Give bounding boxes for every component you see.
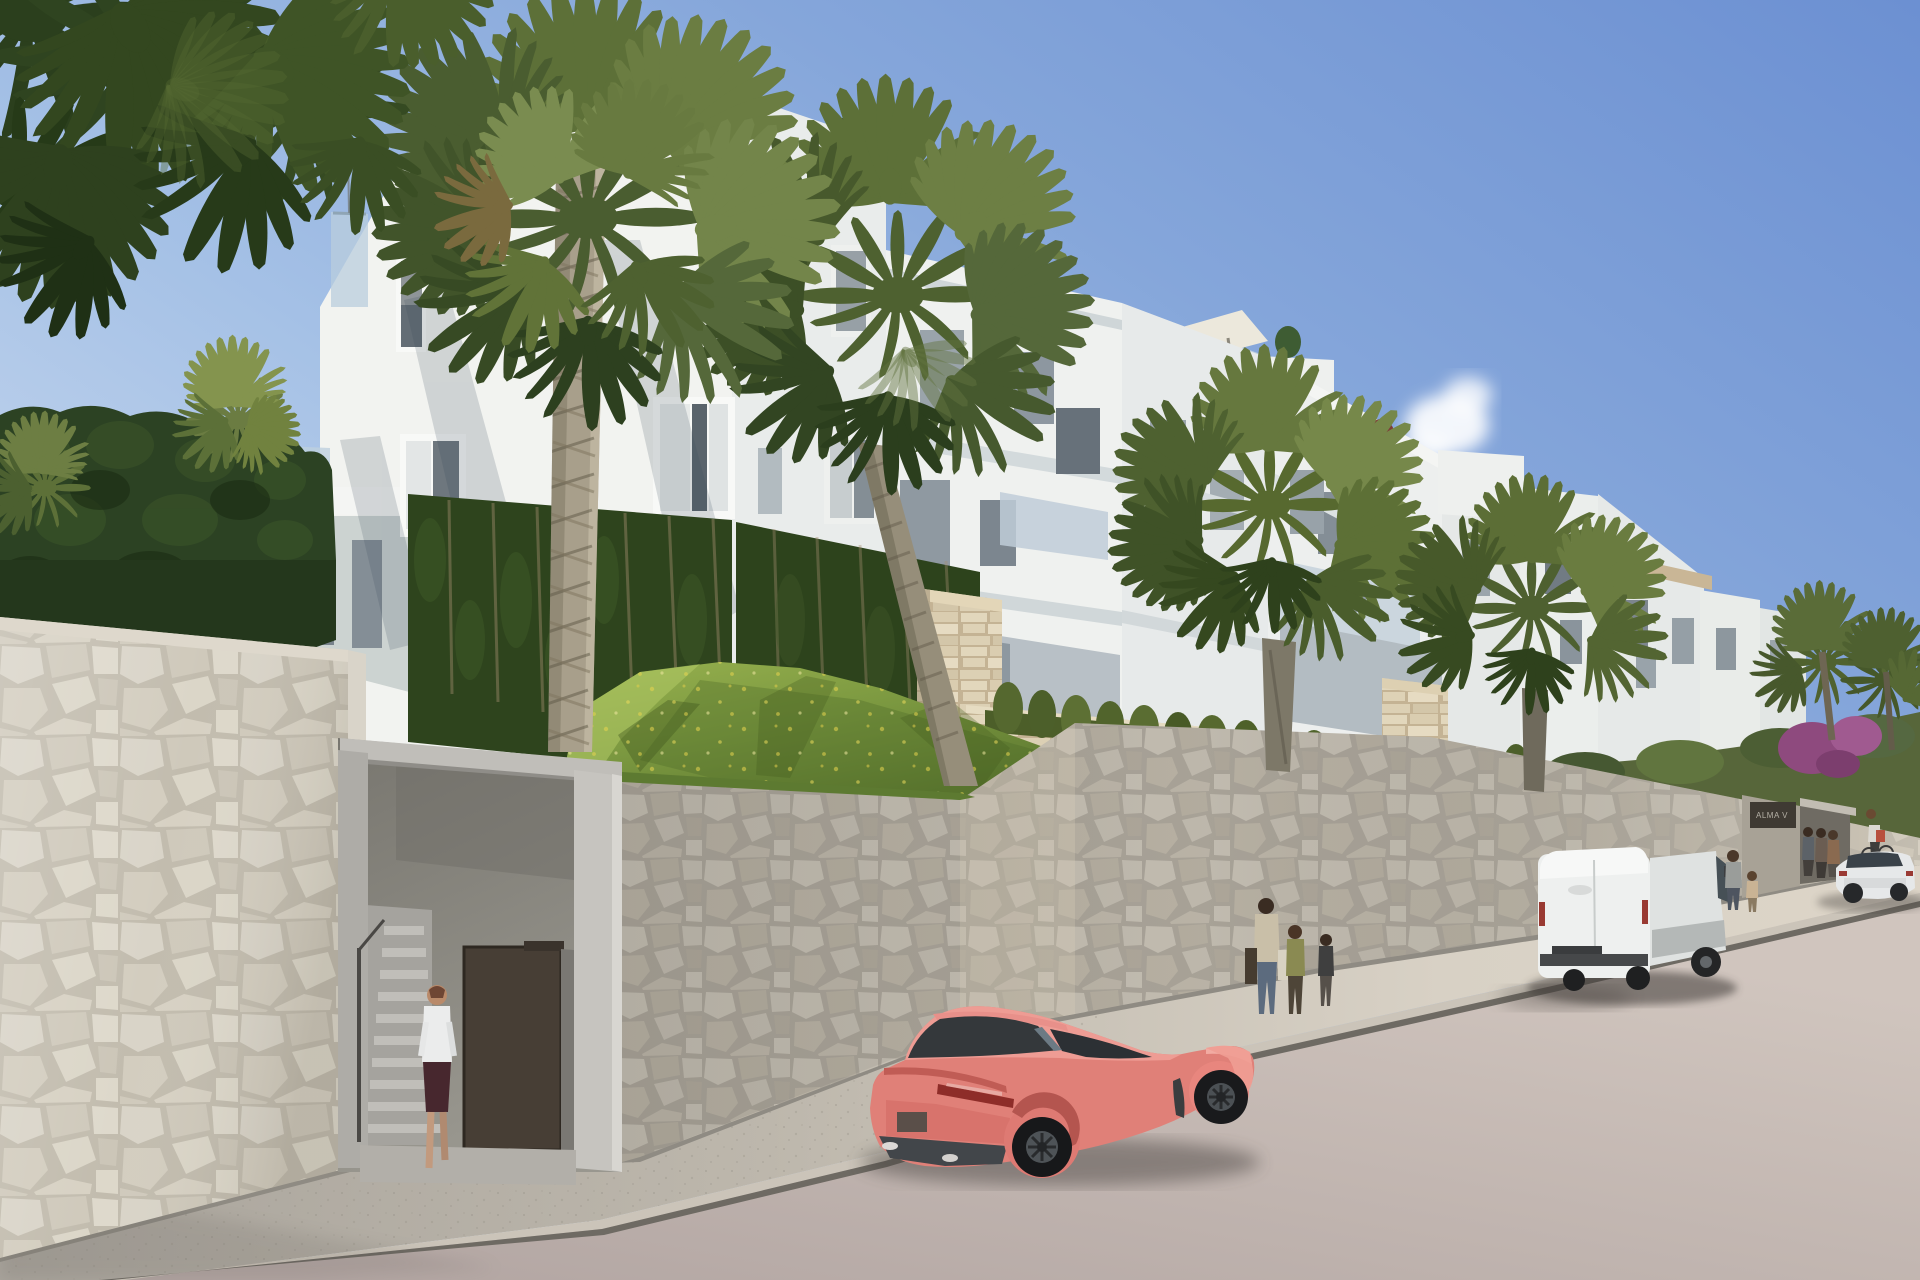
svg-text:ALMA V: ALMA V <box>1756 811 1788 820</box>
